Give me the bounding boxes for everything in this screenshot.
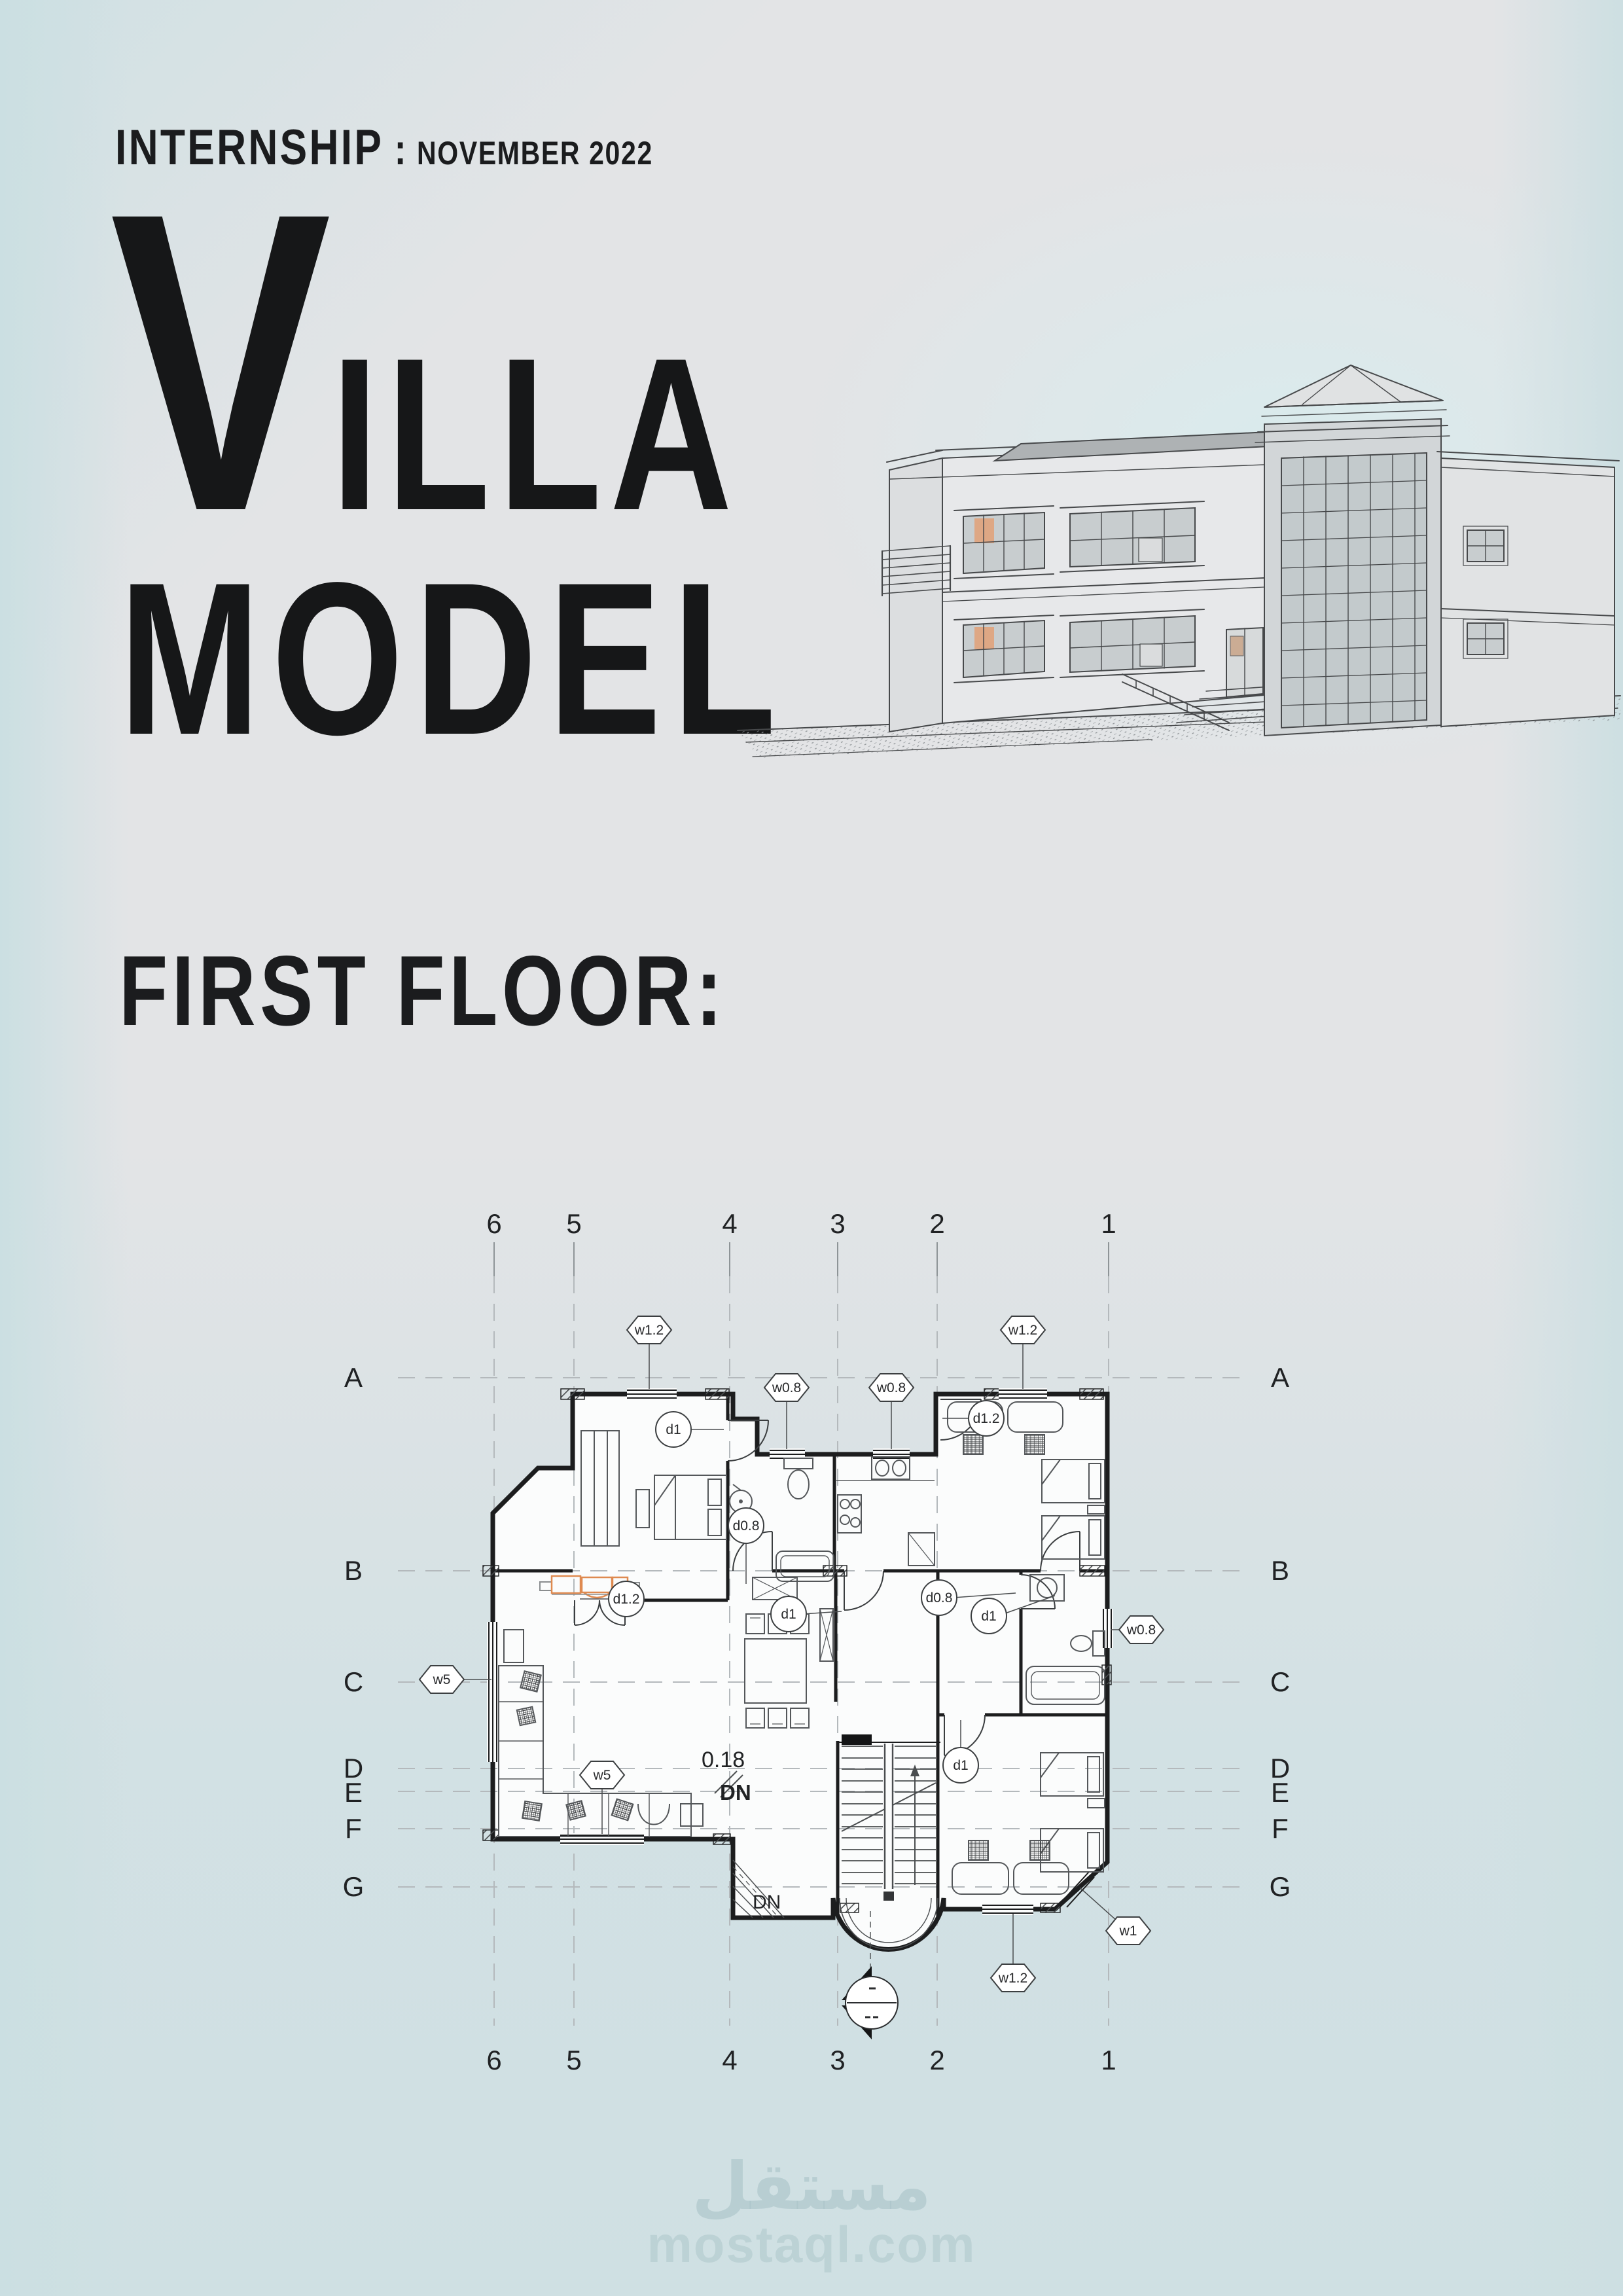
window-tag-label: w0.8 [1126,1623,1156,1638]
villa-3d-sketch [738,365,1620,758]
window-tag-label: w0.8 [772,1380,801,1395]
desk-chair [963,1435,983,1454]
door-tag-label: d0.8 [733,1518,760,1534]
grid-number-top: 2 [929,1208,944,1239]
grid-letter-right: F [1272,1813,1289,1844]
window-w5-left [487,1622,499,1762]
grid-number-bottom: 5 [566,2045,581,2075]
window-w1.2-bedroom3 [982,1903,1033,1915]
drawings-canvas: 6 5 4 3 2 1 6 5 4 3 2 1 A B C D E F G A [0,0,1623,2296]
grid-letter-right: E [1271,1777,1289,1808]
grid-letter-right: B [1271,1555,1289,1586]
grid-number-bottom: 4 [722,2045,737,2075]
grid-number-top: 1 [1101,1208,1116,1239]
window-tag-label: w5 [433,1672,451,1687]
desk-chair [1030,1840,1050,1860]
stair-down-label: DN [720,1780,751,1804]
grid-letter-left: F [345,1813,362,1844]
window-w5-bottom [560,1833,644,1845]
window-w1.2-bedroom2 [999,1388,1047,1400]
window-tag-label: w1.2 [634,1323,664,1338]
grid-letter-left: A [344,1362,363,1393]
grid-number-top: 5 [566,1208,581,1239]
portfolio-page: INTERNSHIP : NOVEMBER 2022 VILLA MODEL F… [0,0,1623,2296]
grid-letter-right: A [1271,1362,1289,1393]
grid-number-bottom: 3 [830,2045,845,2075]
grid-number-top: 6 [486,1208,501,1239]
villa-right-wing [1437,452,1619,726]
grid-letter-right: G [1270,1871,1291,1902]
window-tag-label: w1 [1119,1924,1137,1939]
desk-chair [1025,1435,1044,1454]
window-w0.8-bath2 [1101,1609,1113,1648]
window-w1.2-bedroom1 [627,1388,677,1400]
grid-number-bottom: 6 [486,2045,501,2075]
grid-number-top: 3 [830,1208,845,1239]
door-tag-label: d1.2 [613,1592,640,1607]
tower-cap [1262,365,1446,416]
door-tag-label: d0.8 [926,1590,953,1605]
window-w0.8-kitchen [873,1448,910,1460]
wall-solid-section [842,1734,872,1745]
door-tag-label: d1 [981,1609,996,1624]
section-marker [842,1966,898,2039]
desk-chair [969,1840,988,1860]
door-tag-label: d1.2 [973,1411,1000,1426]
window-tag-label: w0.8 [876,1380,906,1395]
window-tag-label: w5 [593,1768,611,1783]
door-tag-label: d1 [781,1607,796,1622]
grid-letter-left: G [343,1871,365,1902]
door-tag-label: d1 [953,1758,968,1773]
window-tag-label: w1.2 [998,1971,1027,1986]
grid-number-top: 4 [722,1208,737,1239]
villa-tower [1255,365,1450,736]
porch-column [883,1892,894,1901]
window-tag-label: w1.2 [1008,1323,1037,1338]
grid-number-bottom: 2 [929,2045,944,2075]
grid-number-bottom: 1 [1101,2045,1116,2075]
door-tag-label: d1 [666,1422,681,1437]
stair-down-label-2: DN [753,1892,781,1913]
level-marker: 0.18 [702,1748,745,1772]
grid-letter-left: C [344,1666,363,1697]
grid-letter-left: E [344,1777,363,1808]
grid-letter-left: B [344,1555,363,1586]
grid-letter-right: C [1270,1666,1290,1697]
floor-plan: 6 5 4 3 2 1 6 5 4 3 2 1 A B C D E F G A [343,1208,1291,2075]
